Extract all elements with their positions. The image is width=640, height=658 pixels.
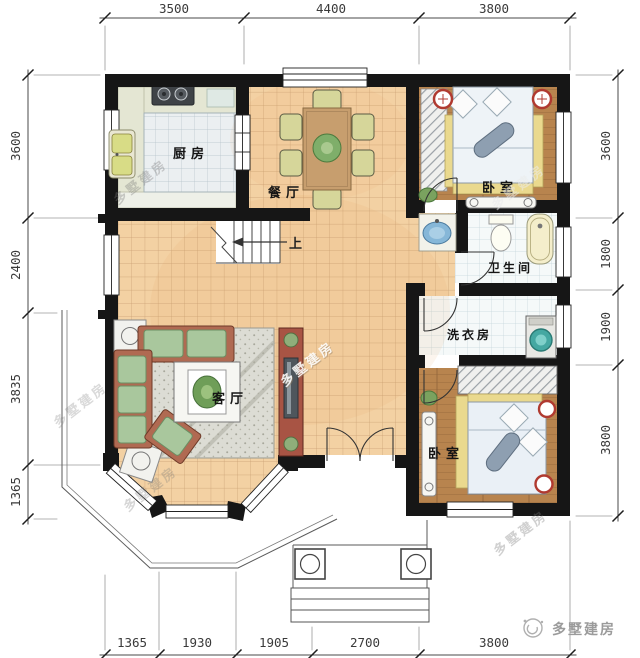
accent-lamp	[536, 476, 553, 493]
porch-steps	[291, 588, 429, 622]
washing-machine	[526, 316, 556, 358]
dim-left-2: 3835	[8, 374, 23, 404]
dim-top-0: 3500	[159, 1, 189, 16]
wall-right-wing-left	[406, 283, 419, 516]
wall-kitchen-bottom	[105, 208, 310, 221]
accent-lamp	[539, 401, 555, 417]
wardrobe	[458, 366, 557, 394]
floor-plan-canvas: 3500 4400 3800 1365 1930 1905 2700 3800 …	[0, 0, 640, 658]
wall-bathroom-laundry	[459, 283, 570, 296]
bedroom-top-window	[556, 112, 571, 183]
dim-left-3: 1365	[8, 477, 23, 507]
dim-right-0: 3600	[598, 131, 613, 161]
kitchen-sink	[109, 130, 135, 178]
dining-chair	[352, 150, 374, 176]
laundry-window	[556, 305, 571, 348]
label-bedroom-bottom: 卧室	[428, 446, 464, 462]
hall-vanity	[419, 214, 456, 251]
brand-icon	[524, 619, 544, 637]
plant	[284, 333, 298, 347]
dim-bottom-3: 2700	[350, 635, 380, 650]
wall-kitchen-right-lower	[236, 170, 249, 208]
living-window-left	[104, 235, 119, 295]
dim-top-1: 4400	[316, 1, 346, 16]
dining-chair	[280, 114, 302, 140]
porch-column-left	[295, 549, 325, 579]
dim-top-2: 3800	[479, 1, 509, 16]
dim-bottom-0: 1365	[117, 635, 147, 650]
label-bathroom: 卫生间	[488, 260, 533, 275]
dim-bottom-4: 3800	[479, 635, 509, 650]
dining-window	[283, 68, 367, 87]
wall-kitchen-right-upper	[236, 87, 249, 115]
porch-column-right	[401, 549, 431, 579]
dim-bottom-1: 1930	[182, 635, 212, 650]
wall-pilaster-2	[98, 310, 105, 319]
dim-right-1: 1800	[598, 239, 613, 269]
wall-pilaster-1	[98, 214, 105, 223]
dim-left-0: 3600	[8, 131, 23, 161]
dim-right-2: 1900	[598, 312, 613, 342]
label-stairs-up: 上	[289, 237, 302, 252]
bay-window-center	[166, 505, 228, 518]
label-dining: 餐厅	[267, 185, 304, 201]
toilet	[491, 225, 511, 251]
dim-left-1: 2400	[8, 250, 23, 280]
wall-front-right	[395, 455, 419, 468]
kitchen-sliding-door	[235, 115, 250, 170]
dim-bottom-2: 1905	[259, 635, 289, 650]
label-living: 客厅	[212, 391, 248, 407]
brand-logo: 多墅建房	[524, 619, 616, 638]
bedroom-bottom-window	[447, 502, 513, 517]
wall-dining-bedroom	[406, 87, 419, 218]
plant	[284, 437, 298, 451]
porch	[291, 549, 431, 622]
tv-cabinet	[279, 328, 303, 456]
brand-name: 多墅建房	[552, 621, 616, 638]
wall-hall-bathroom	[455, 213, 468, 253]
dining-chair	[280, 150, 302, 176]
toilet-tank	[489, 215, 513, 224]
watermark: 多墅建房	[51, 379, 111, 431]
dining-chair	[352, 114, 374, 140]
kitchen-appliance	[207, 89, 234, 107]
bathroom-window	[556, 227, 571, 277]
floor-plan-page: 3500 4400 3800 1365 1930 1905 2700 3800 …	[0, 0, 640, 658]
label-laundry: 洗衣房	[447, 327, 492, 342]
dining-chair	[313, 188, 341, 209]
staircase	[211, 221, 287, 264]
label-kitchen: 厨房	[173, 146, 209, 162]
dim-right-3: 3800	[598, 425, 613, 455]
